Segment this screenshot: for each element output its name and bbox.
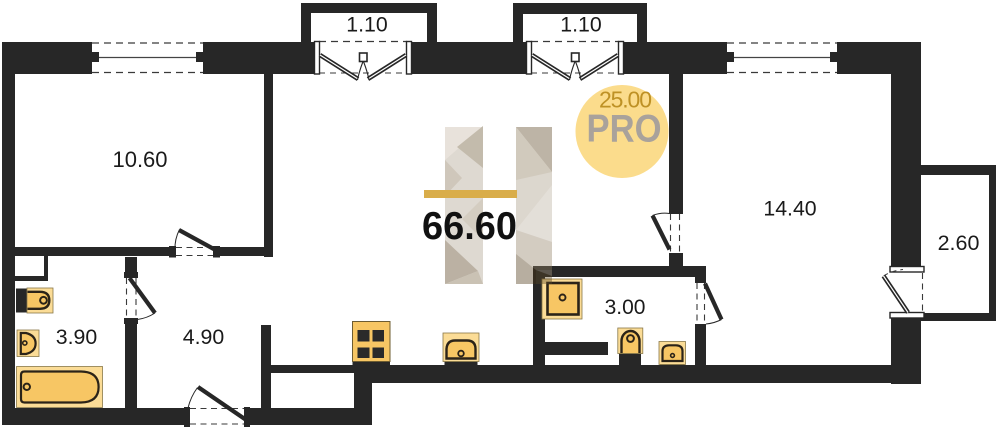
- svg-text:2.60: 2.60: [938, 231, 980, 255]
- svg-text:3.90: 3.90: [56, 325, 98, 349]
- svg-text:3.00: 3.00: [605, 296, 646, 319]
- svg-text:66.60: 66.60: [422, 205, 517, 248]
- svg-text:PRO: PRO: [587, 108, 662, 151]
- svg-text:1.10: 1.10: [560, 13, 602, 37]
- svg-text:14.40: 14.40: [763, 197, 816, 221]
- svg-text:1.10: 1.10: [346, 13, 388, 37]
- svg-text:10.60: 10.60: [112, 147, 167, 172]
- svg-text:4.90: 4.90: [183, 325, 225, 349]
